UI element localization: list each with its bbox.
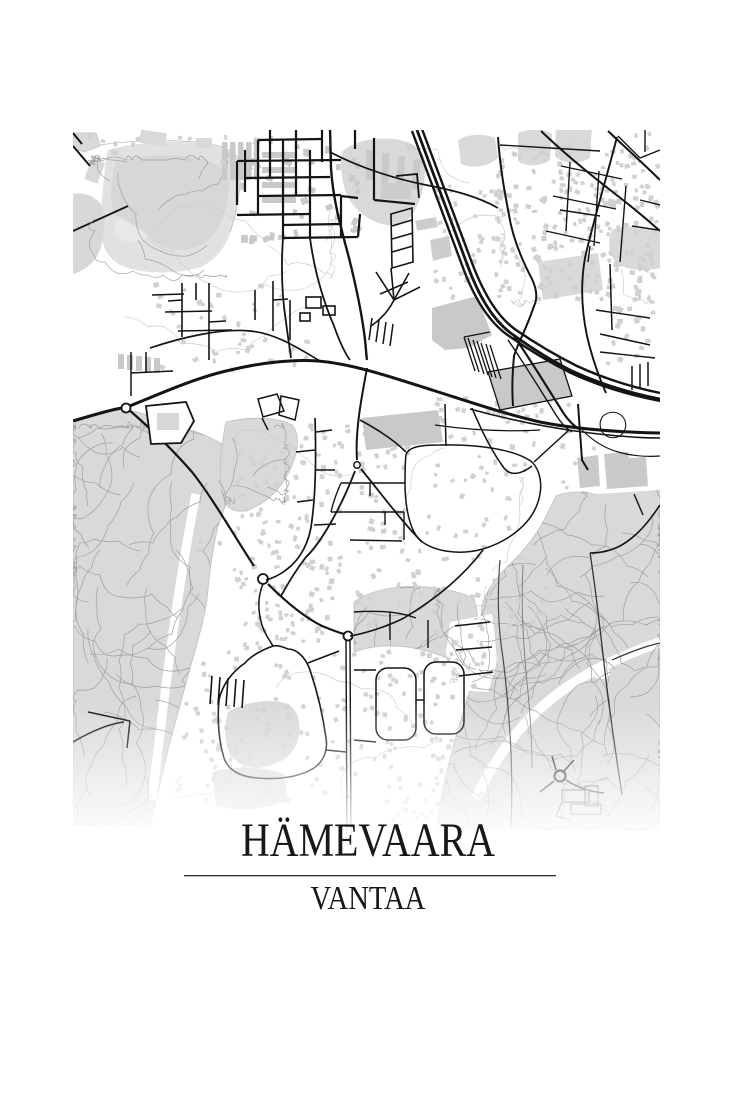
svg-text:HÄMEVAARA: HÄMEVAARA (241, 814, 495, 867)
svg-text:VANTAA: VANTAA (311, 880, 426, 917)
